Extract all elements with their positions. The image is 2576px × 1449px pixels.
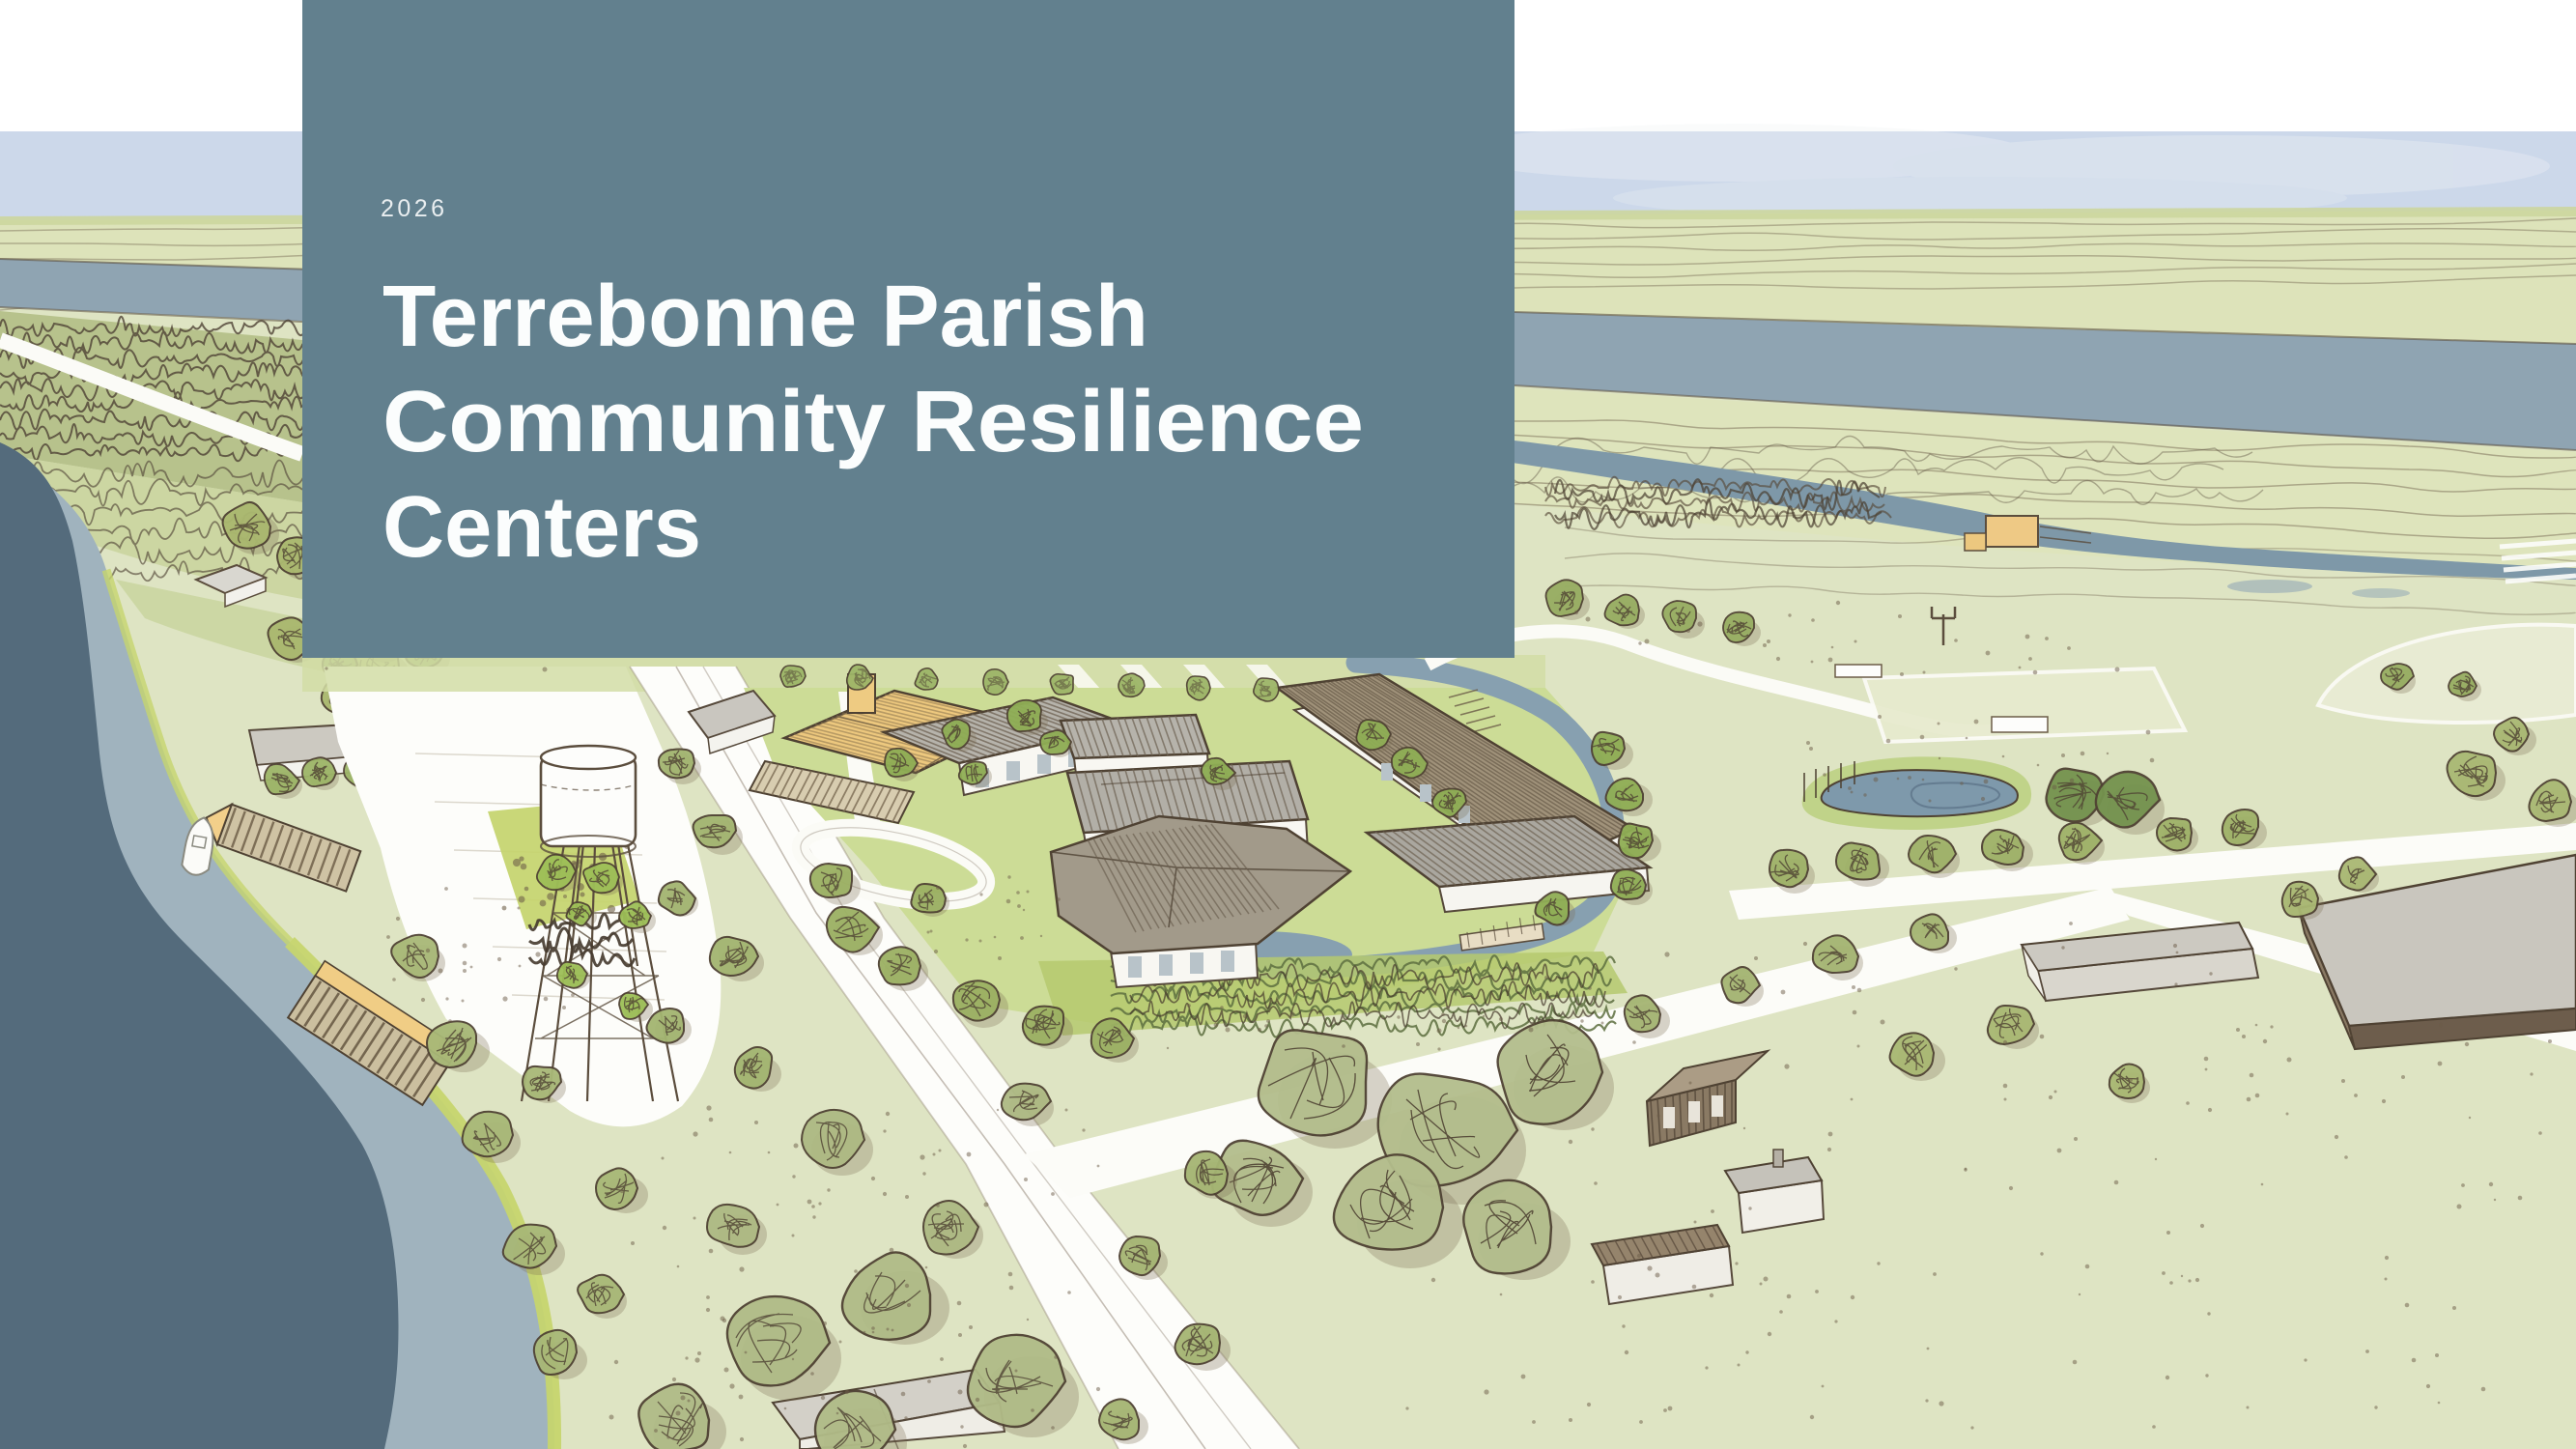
svg-text:Community Resilience: Community Resilience	[382, 374, 1364, 470]
svg-text:Terrebonne Parish: Terrebonne Parish	[382, 269, 1148, 365]
svg-text:Centers: Centers	[382, 479, 701, 576]
